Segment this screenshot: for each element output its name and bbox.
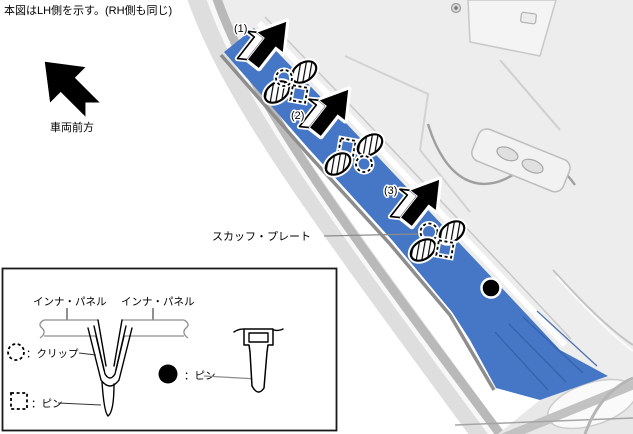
panel-latch [520,12,536,24]
callout-step3: (3) [384,185,397,197]
front-direction-arrow [27,44,110,127]
legend-pin-square-label: ：ピン [31,398,63,410]
inner-panel-label-left: インナ・パネル [33,296,107,308]
callout-step1: (1) [234,23,247,35]
scene: (1) (2) (3) 本図はLH側を示す。(RH側も同じ) 車両前方 スカッフ… [0,0,633,434]
legend-filled-circle [159,365,178,384]
legend-clip-label: ：クリップ [26,348,79,360]
service-manual-illustration: (1) (2) (3) 本図はLH側を示す。(RH側も同じ) 車両前方 スカッフ… [0,0,633,434]
callout-step2: (2) [291,110,304,122]
note-text: 本図はLH側を示す。(RH側も同じ) [4,3,172,17]
floor-bolt-center [454,6,457,9]
scuff-plate-label: スカッフ・プレート [212,230,311,243]
legend-box: インナ・パネル インナ・パネル ：クリップ ：ピン [3,269,337,431]
pin-marker-filled-circle [482,279,501,298]
inner-panel-label-right: インナ・パネル [121,296,195,308]
front-direction-label: 車両前方 [50,120,94,134]
